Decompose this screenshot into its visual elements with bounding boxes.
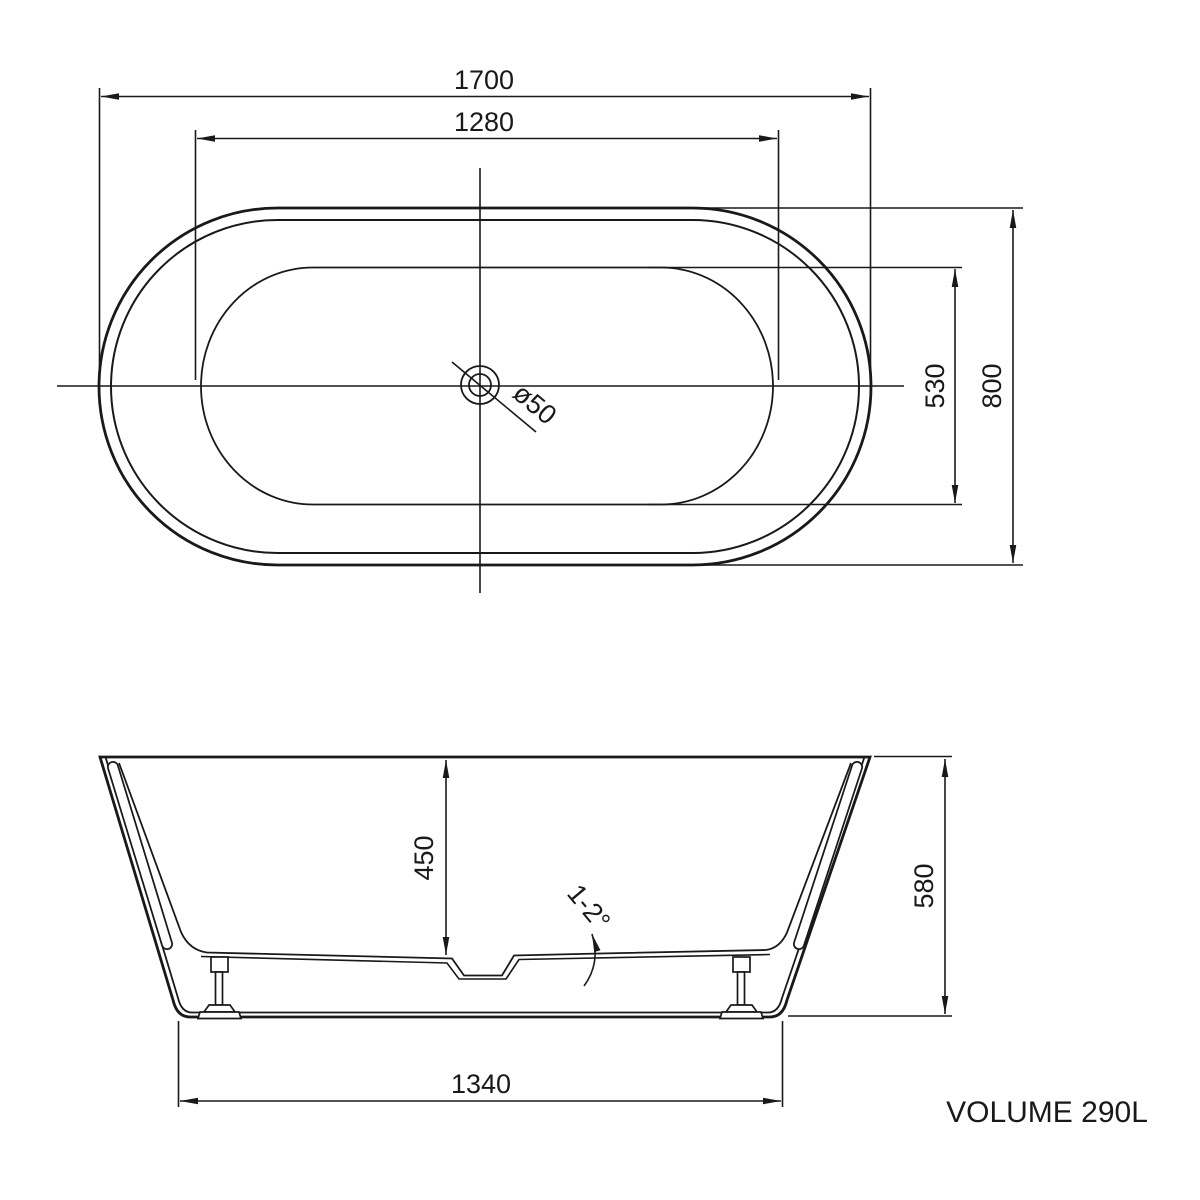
dimension-base-length: 1340	[179, 1021, 783, 1107]
foot-stem	[216, 972, 223, 1005]
floor-slope-label: 1-2°	[561, 879, 616, 936]
basin-wall-and-floor-line	[119, 763, 851, 976]
volume-note: VOLUME 290L	[946, 1096, 1148, 1129]
technical-drawing-page: ø50 1700 1280 530 800	[0, 0, 1200, 1200]
bathtub-technical-drawing: ø50 1700 1280 530 800	[0, 0, 1200, 1200]
dimension-inner-depth: 450	[409, 760, 446, 955]
angle-arc	[584, 934, 595, 986]
basin-length-label: 1280	[454, 107, 514, 137]
foot-stem	[738, 972, 745, 1005]
left-rim-slot	[113, 767, 167, 944]
right-foot	[720, 957, 763, 1019]
foot-base	[720, 1012, 763, 1019]
floor-slope-callout: 1-2°	[561, 879, 616, 986]
overall-length-label: 1700	[454, 65, 514, 95]
foot-mount-block	[211, 957, 228, 972]
top-view: ø50 1700 1280 530 800	[57, 65, 1023, 593]
foot-mount-block	[733, 957, 750, 972]
overall-height-label: 580	[909, 863, 939, 908]
basin-width-label: 530	[920, 363, 950, 408]
overall-width-label: 800	[977, 363, 1007, 408]
foot-neck	[726, 1005, 757, 1012]
left-foot	[198, 957, 241, 1019]
inner-depth-label: 450	[409, 835, 439, 880]
right-rim-slot	[799, 767, 857, 944]
dimension-basin-length: 1280	[196, 107, 779, 380]
base-length-label: 1340	[451, 1069, 511, 1099]
foot-neck	[204, 1005, 235, 1012]
foot-base	[198, 1012, 241, 1019]
side-view: 450 1-2° 580 1340	[100, 757, 952, 1108]
